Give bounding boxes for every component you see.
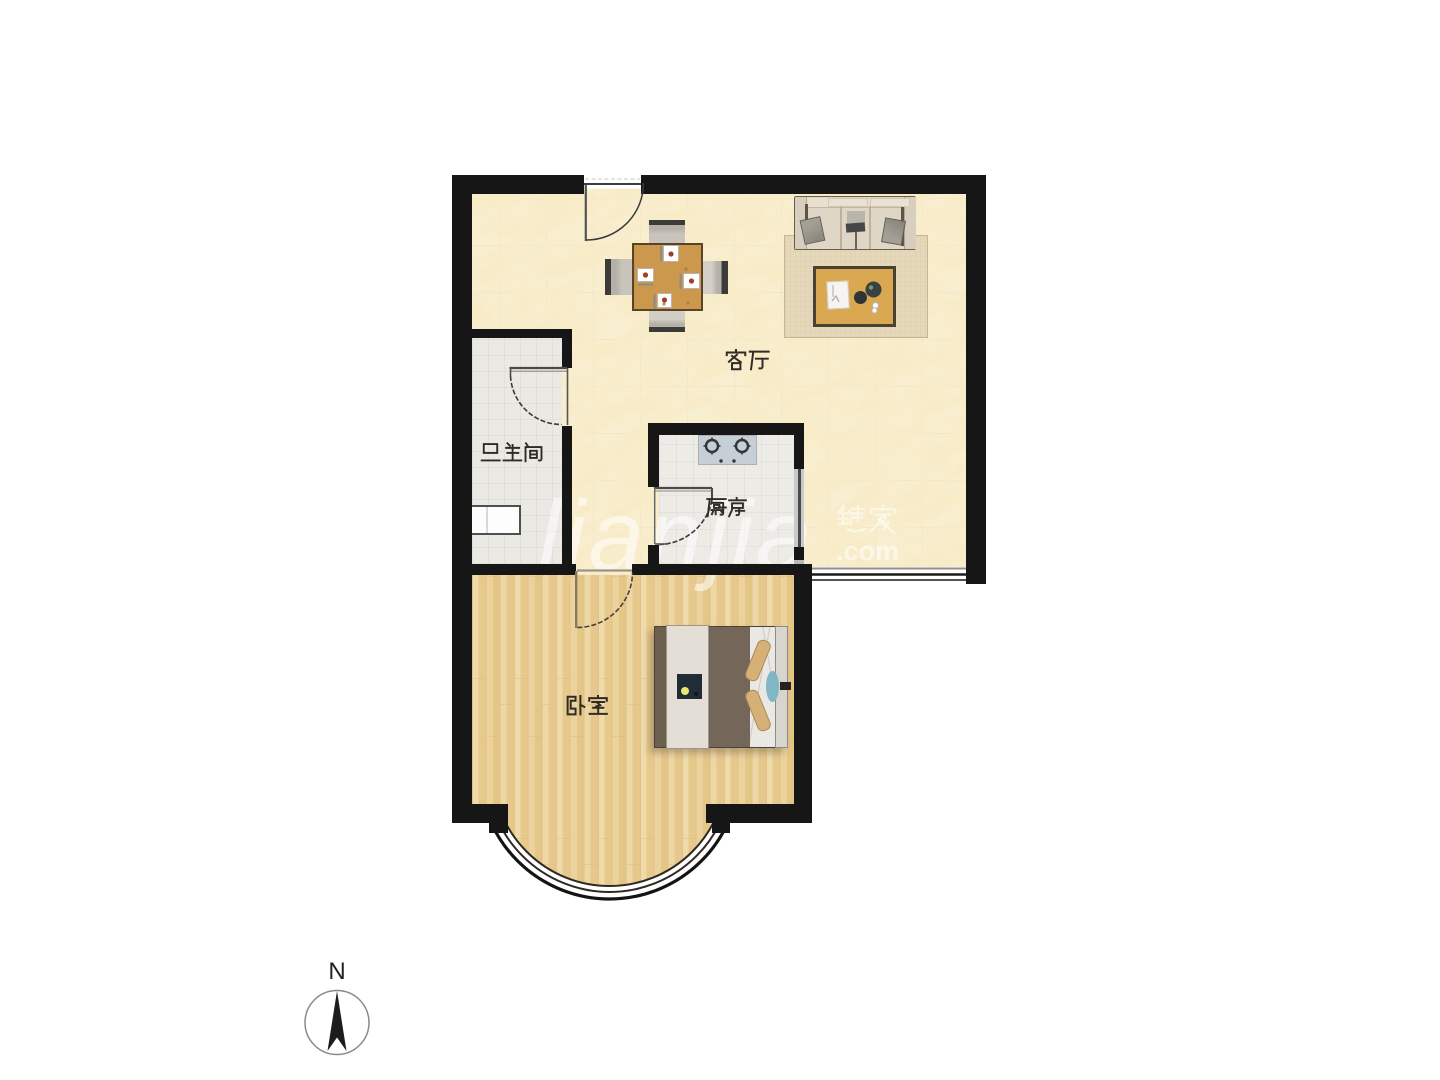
svg-text:N: N: [328, 958, 345, 985]
